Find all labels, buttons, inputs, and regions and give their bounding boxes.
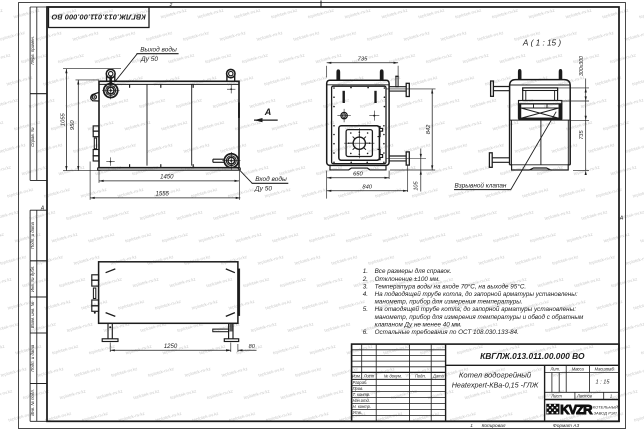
svg-text:6.: 6. bbox=[363, 329, 368, 336]
svg-text:КВГЛЖ.013.011.00.000 ВО: КВГЛЖ.013.011.00.000 ВО bbox=[51, 13, 146, 22]
svg-text:Инв. № дубл.: Инв. № дубл. bbox=[30, 266, 35, 292]
svg-text:Справ. №: Справ. № bbox=[30, 127, 35, 147]
svg-text:Нач.отд.: Нач.отд. bbox=[353, 398, 370, 403]
svg-text:Котел водогрейный: Котел водогрейный bbox=[459, 371, 532, 380]
svg-text:манометр, прибор для измерения: манометр, прибор для измерения температу… bbox=[375, 313, 584, 321]
svg-text:Подп.: Подп. bbox=[415, 373, 426, 378]
svg-text:ЗАВОД РЭП: ЗАВОД РЭП bbox=[594, 411, 617, 416]
svg-text:Дата: Дата bbox=[432, 373, 445, 378]
svg-text:300х300: 300х300 bbox=[579, 56, 585, 76]
svg-text:№ докум.: № докум. bbox=[384, 373, 402, 378]
svg-text:80: 80 bbox=[249, 344, 256, 350]
svg-text:клапаном Ду не менее 40 мм.: клапаном Ду не менее 40 мм. bbox=[375, 321, 462, 328]
svg-text:КВГЛЖ.013.011.00.000 ВО: КВГЛЖ.013.011.00.000 ВО bbox=[480, 351, 585, 361]
svg-text:Все размеры для справок.: Все размеры для справок. bbox=[375, 267, 452, 275]
svg-text:На отводящей трубе котла; до з: На отводящей трубе котла; до запорной ар… bbox=[375, 305, 577, 313]
svg-text:2: 2 bbox=[169, 2, 173, 8]
svg-text:4.: 4. bbox=[363, 291, 368, 298]
svg-text:манометр, прибор для измерения: манометр, прибор для измерения температу… bbox=[375, 298, 523, 306]
svg-text:КОТЕЛЬНЫЙ: КОТЕЛЬНЫЙ bbox=[593, 405, 618, 410]
svg-text:KVZR: KVZR bbox=[560, 402, 593, 417]
svg-text:А: А bbox=[619, 216, 624, 222]
svg-text:Взам. инв. №: Взам. инв. № bbox=[30, 301, 35, 328]
svg-text:1: 1 bbox=[610, 394, 612, 399]
svg-text:А: А bbox=[40, 206, 45, 212]
svg-text:А: А bbox=[264, 107, 272, 117]
svg-text:Лист: Лист bbox=[550, 394, 562, 399]
svg-text:5.: 5. bbox=[363, 306, 368, 313]
svg-text:735: 735 bbox=[358, 57, 368, 63]
svg-text:Подп. и дата: Подп. и дата bbox=[30, 344, 35, 372]
svg-text:Н. контр.: Н. контр. bbox=[353, 404, 371, 409]
svg-text:1 : 15: 1 : 15 bbox=[596, 380, 611, 386]
svg-text:Изм.: Изм. bbox=[352, 373, 361, 378]
svg-text:105: 105 bbox=[413, 180, 419, 190]
svg-text:Ду 50: Ду 50 bbox=[140, 56, 158, 63]
svg-text:Heatexpert-КВа-0,15 -ГЛЖ: Heatexpert-КВа-0,15 -ГЛЖ bbox=[452, 381, 539, 390]
svg-text:Выход воды: Выход воды bbox=[140, 45, 177, 53]
svg-text:950: 950 bbox=[70, 120, 76, 130]
svg-text:Температура воды на входе 70°С: Температура воды на входе 70°С, на выход… bbox=[375, 282, 527, 290]
svg-text:1250: 1250 bbox=[164, 344, 178, 350]
svg-text:Разраб.: Разраб. bbox=[353, 380, 368, 385]
svg-text:Лист: Лист bbox=[363, 373, 375, 378]
svg-text:Вход воды: Вход воды bbox=[255, 175, 287, 183]
svg-text:Копировал: Копировал bbox=[482, 423, 506, 429]
svg-text:Масса: Масса bbox=[572, 366, 585, 371]
svg-text:1055: 1055 bbox=[60, 112, 66, 126]
svg-text:Перв. примен.: Перв. примен. bbox=[30, 36, 35, 65]
svg-text:Взрывной клапан: Взрывной клапан bbox=[455, 181, 507, 189]
svg-text:Формат А3: Формат А3 bbox=[553, 423, 580, 429]
svg-text:Пров.: Пров. bbox=[353, 386, 364, 391]
svg-text:На подводящей трубе котла, до: На подводящей трубе котла, до запорной а… bbox=[375, 290, 578, 298]
svg-text:Утв.: Утв. bbox=[353, 410, 362, 415]
svg-text:840: 840 bbox=[362, 185, 372, 191]
svg-text:Подп. и дата: Подп. и дата bbox=[30, 221, 35, 249]
svg-text:2.: 2. bbox=[362, 276, 368, 283]
svg-text:Масштаб: Масштаб bbox=[595, 366, 615, 371]
svg-text:1450: 1450 bbox=[160, 175, 174, 181]
svg-text:Инв. № подл.: Инв. № подл. bbox=[30, 389, 35, 416]
svg-text:А ( 1 : 15 ): А ( 1 : 15 ) bbox=[522, 39, 561, 48]
svg-text:650: 650 bbox=[353, 172, 363, 178]
svg-text:Листов: Листов bbox=[576, 394, 593, 399]
svg-text:1.: 1. bbox=[363, 268, 368, 275]
svg-text:Ду 50: Ду 50 bbox=[254, 185, 272, 192]
svg-text:Лит.: Лит. bbox=[550, 366, 561, 371]
svg-text:Остальные требования по ОСТ 10: Остальные требования по ОСТ 108.030.133-… bbox=[375, 328, 519, 336]
svg-text:3.: 3. bbox=[363, 283, 368, 290]
svg-text:Отклонение ±100 мм.: Отклонение ±100 мм. bbox=[375, 276, 440, 283]
svg-text:Т. контр.: Т. контр. bbox=[353, 392, 371, 397]
svg-text:842: 842 bbox=[426, 124, 432, 134]
svg-text:1: 1 bbox=[470, 423, 473, 429]
svg-text:735: 735 bbox=[579, 129, 585, 139]
svg-text:1555: 1555 bbox=[156, 192, 170, 198]
